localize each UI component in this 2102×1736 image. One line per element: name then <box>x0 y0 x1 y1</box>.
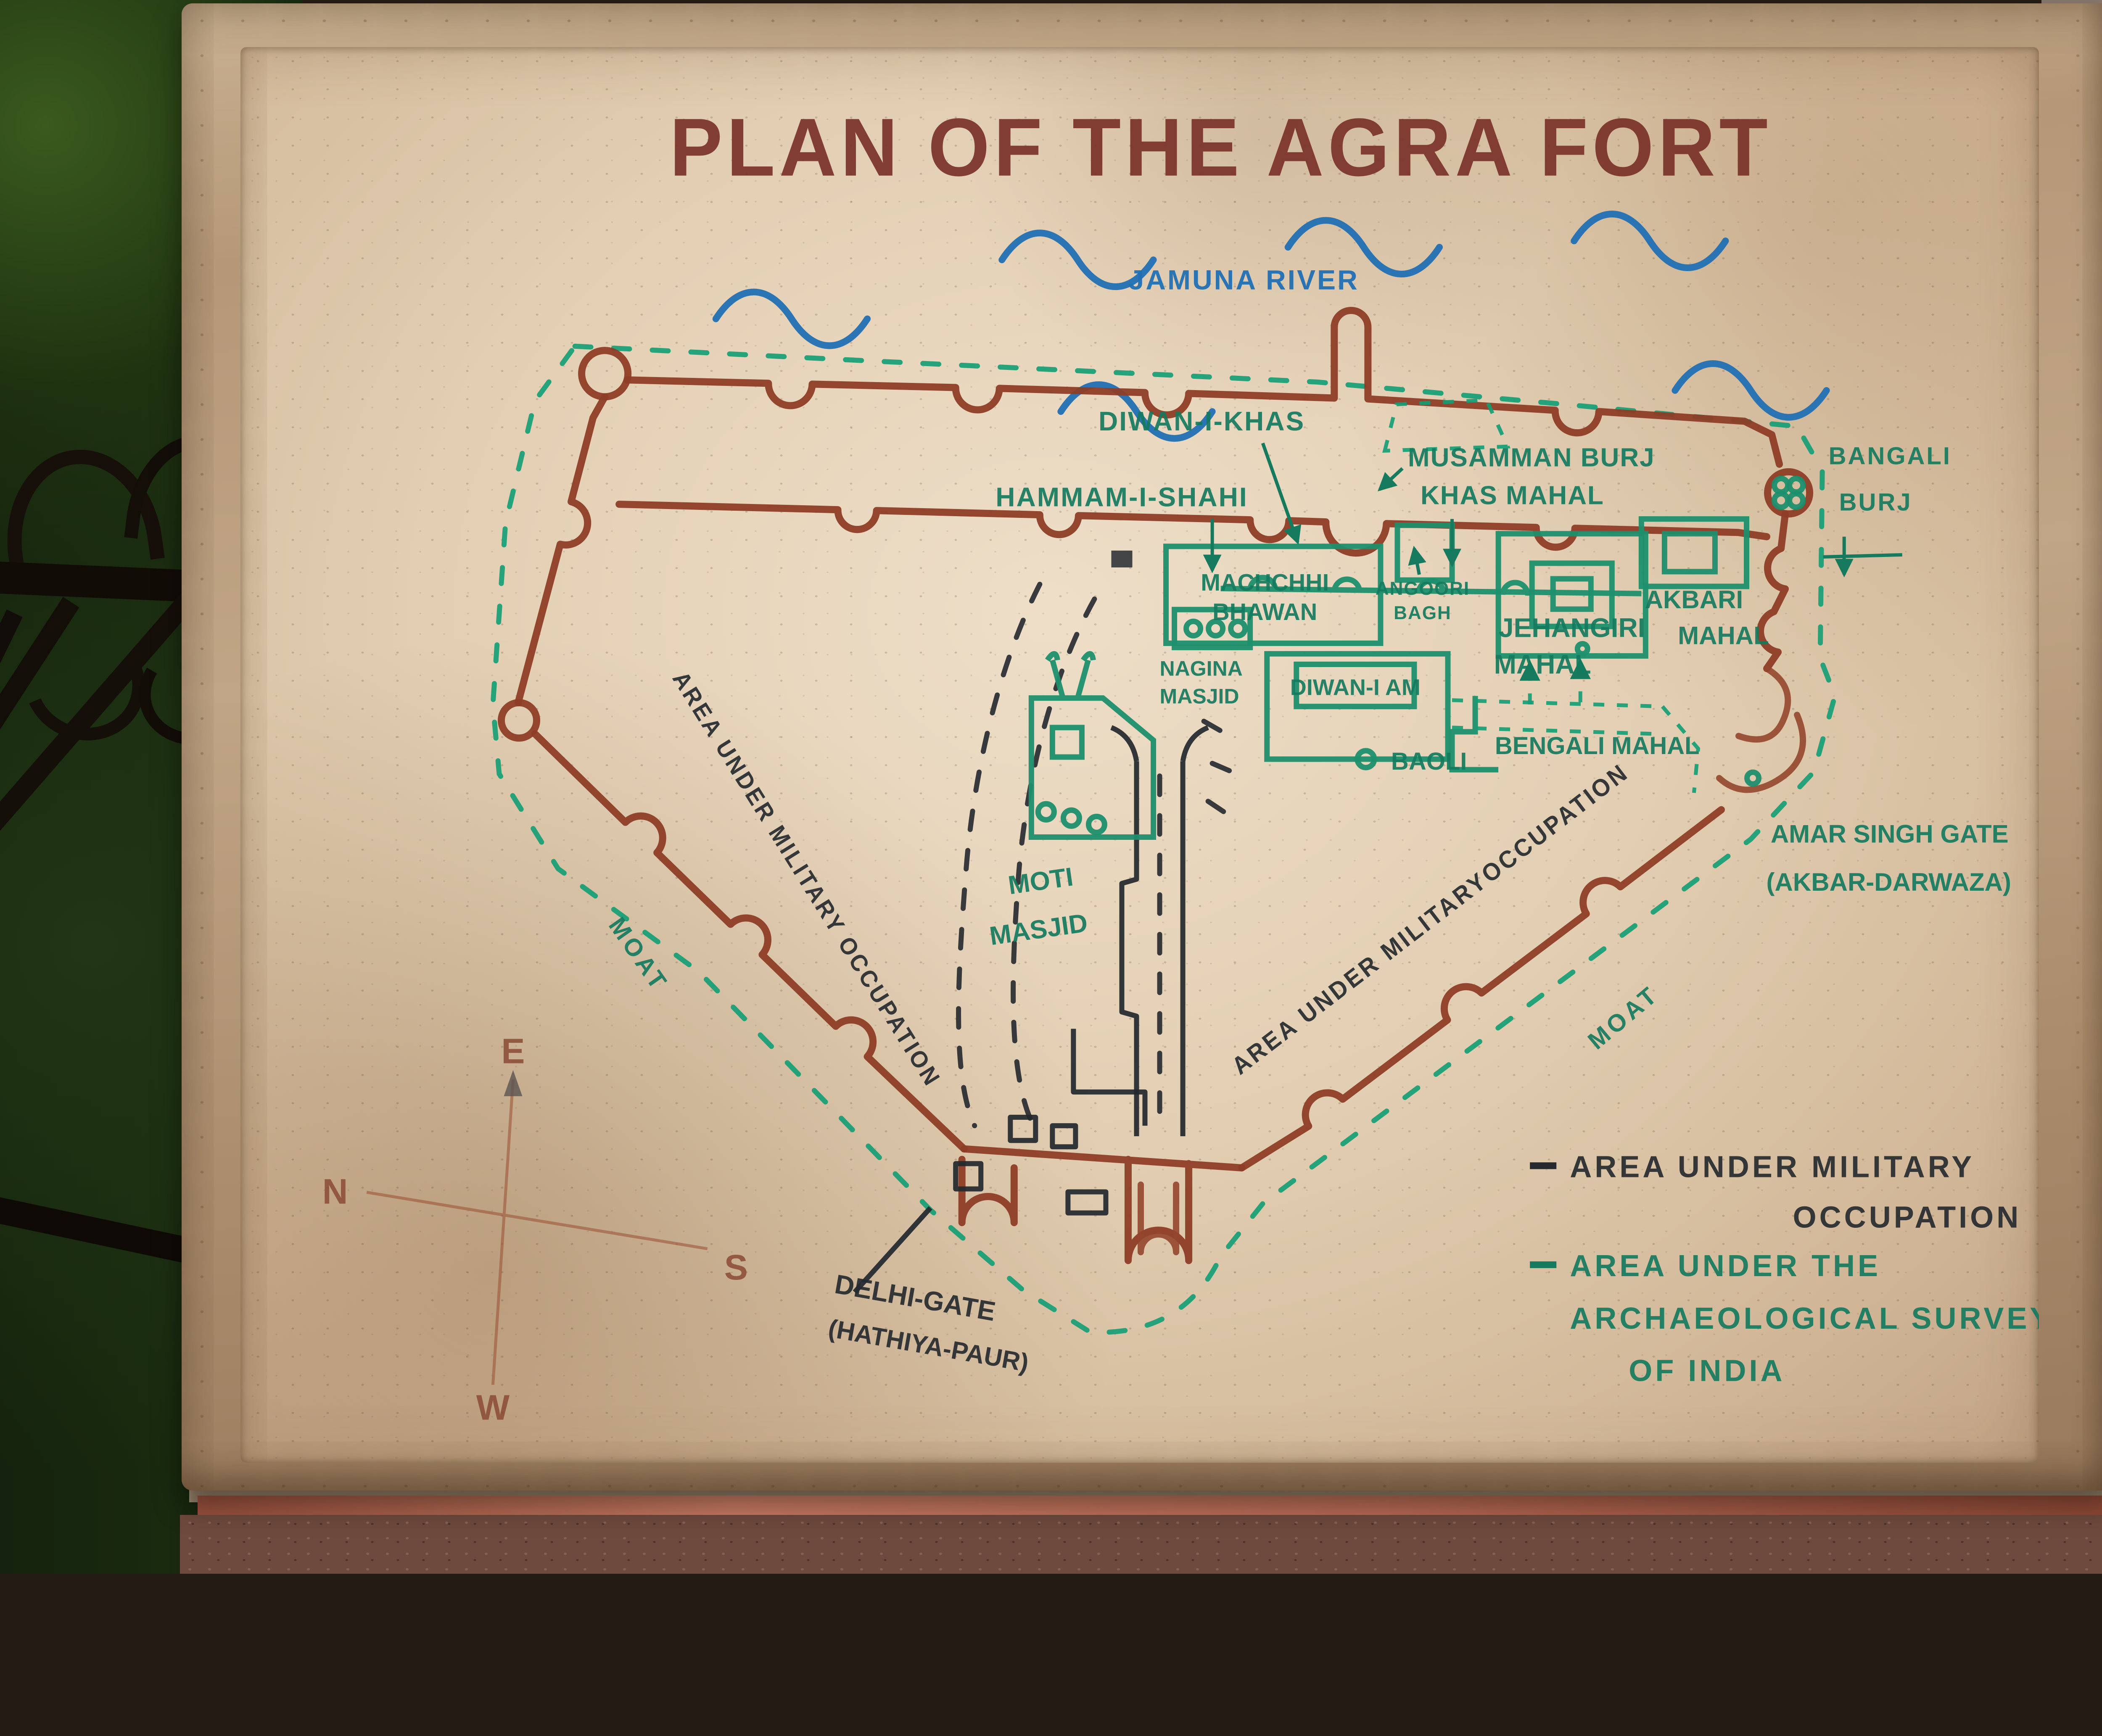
label-akbari-mahal-1: AKBARI <box>1645 586 1743 614</box>
compass-east: E <box>501 1032 525 1071</box>
label-nagina-masjid-1: NAGINA <box>1160 657 1243 681</box>
compass: E N S W <box>322 1032 748 1427</box>
short-dashes <box>1204 721 1242 818</box>
label-musamman-burj: MUSAMMAN BURJ <box>1408 443 1655 472</box>
gate-building <box>1052 1126 1075 1147</box>
delhi-gate-wall <box>962 1149 1241 1261</box>
photo-scene: PLAN OF THE AGRA FORT JAMUNA RIVER <box>0 0 2102 1574</box>
gate-circle <box>1747 772 1759 784</box>
label-jehangiri-mahal-1: JEHANGIRI <box>1499 612 1645 643</box>
label-baoli: BAOLI <box>1391 748 1467 775</box>
label-bangali-burj-1: BANGALI <box>1829 442 1951 470</box>
label-bengali-mahal: BENGALI MAHAL <box>1495 732 1700 760</box>
label-nagina-masjid-2: MASJID <box>1160 685 1239 708</box>
river-label: JAMUNA RIVER <box>1129 264 1359 295</box>
compass-north: N <box>322 1171 348 1211</box>
label-diwan-i-khas: DIWAN-I-KHAS <box>1099 406 1305 436</box>
akbari-mahal-inner <box>1664 534 1715 572</box>
nw-bastion <box>582 351 628 397</box>
sign-stone-frame: PLAN OF THE AGRA FORT JAMUNA RIVER <box>182 3 2102 1491</box>
label-moat-left: MOAT <box>603 913 673 997</box>
legend-asi-1: AREA UNDER THE <box>1570 1249 1881 1283</box>
map-legend: AREA UNDER MILITARY OCCUPATION AREA UNDE… <box>1530 1150 2039 1388</box>
label-hammam-i-shahi: HAMMAM-I-SHAHI <box>996 482 1248 512</box>
small-black-square <box>1111 551 1132 567</box>
compass-west: W <box>476 1388 510 1427</box>
river-waves <box>716 214 1827 438</box>
musamman-burj-arrow <box>1380 468 1402 489</box>
label-amar-singh-gate-1: AMAR SINGH GATE <box>1771 820 2009 848</box>
label-diwan-i-am: DIWAN-I AM <box>1290 675 1421 700</box>
ne-corner-bastion <box>1768 472 1810 514</box>
label-area-military-left: AREA UNDER MILITARY OCCUPATION <box>668 667 946 1092</box>
label-machchhi-bhawan-1: MACHCHHI <box>1201 569 1329 596</box>
label-angoori-bagh-2: BAGH <box>1394 603 1452 623</box>
label-bangali-burj-2: BURJ <box>1839 489 1912 516</box>
west-corner-bastion <box>501 703 536 738</box>
fort-plan-map: PLAN OF THE AGRA FORT JAMUNA RIVER <box>240 47 2039 1463</box>
label-akbari-mahal-2: MAHAL <box>1678 621 1769 649</box>
gate-building <box>1068 1192 1106 1213</box>
compass-cross-lines <box>367 1079 708 1385</box>
label-delhi-gate-2: (HATHIYA-PAUR) <box>826 1314 1031 1377</box>
moti-masjid-domes <box>1038 804 1104 832</box>
label-moti-masjid-2: MASJID <box>988 908 1090 951</box>
military-boundary-dashed <box>959 584 1040 1126</box>
bangali-burj-quatrefoil <box>1775 478 1803 507</box>
page-title: PLAN OF THE AGRA FORT <box>670 102 1772 193</box>
diwan-i-khas-arrow <box>1263 443 1298 542</box>
label-angoori-bagh-1: ANGOORI <box>1376 578 1470 599</box>
compass-arrow-icon <box>504 1070 522 1096</box>
angoori-bagh-enclosure <box>1397 525 1452 580</box>
label-moat-right: MOAT <box>1583 980 1664 1055</box>
label-khas-mahal: KHAS MAHAL <box>1421 481 1604 510</box>
label-jehangiri-mahal-2: MAHAL <box>1494 649 1591 679</box>
label-amar-singh-gate-2: (AKBAR-DARWAZA) <box>1767 868 2011 896</box>
label-delhi-gate-1: DELHI-GATE <box>832 1269 998 1327</box>
west-wall <box>518 397 605 703</box>
amar-singh-gate-structure <box>1719 669 1803 790</box>
marble-panel: PLAN OF THE AGRA FORT JAMUNA RIVER <box>240 47 2039 1463</box>
legend-military-1: AREA UNDER MILITARY <box>1570 1150 1975 1184</box>
delhi-gate-inner-loop <box>1141 1185 1176 1252</box>
legend-military-2: OCCUPATION <box>1793 1201 2022 1235</box>
gate-building <box>1010 1117 1035 1140</box>
legend-asi-2: ARCHAEOLOGICAL SURVEY <box>1570 1302 2039 1335</box>
compass-south: S <box>724 1248 748 1287</box>
legend-asi-3: OF INDIA <box>1629 1354 1785 1388</box>
angoori-bagh-arrow <box>1414 549 1419 575</box>
bangali-burj-arrow <box>1823 537 1902 575</box>
moti-masjid-inner <box>1052 728 1082 757</box>
label-machchhi-bhawan-2: BHAWAN <box>1212 599 1317 625</box>
fence-scroll <box>7 608 162 759</box>
stone-pedestal <box>180 1515 2102 1574</box>
